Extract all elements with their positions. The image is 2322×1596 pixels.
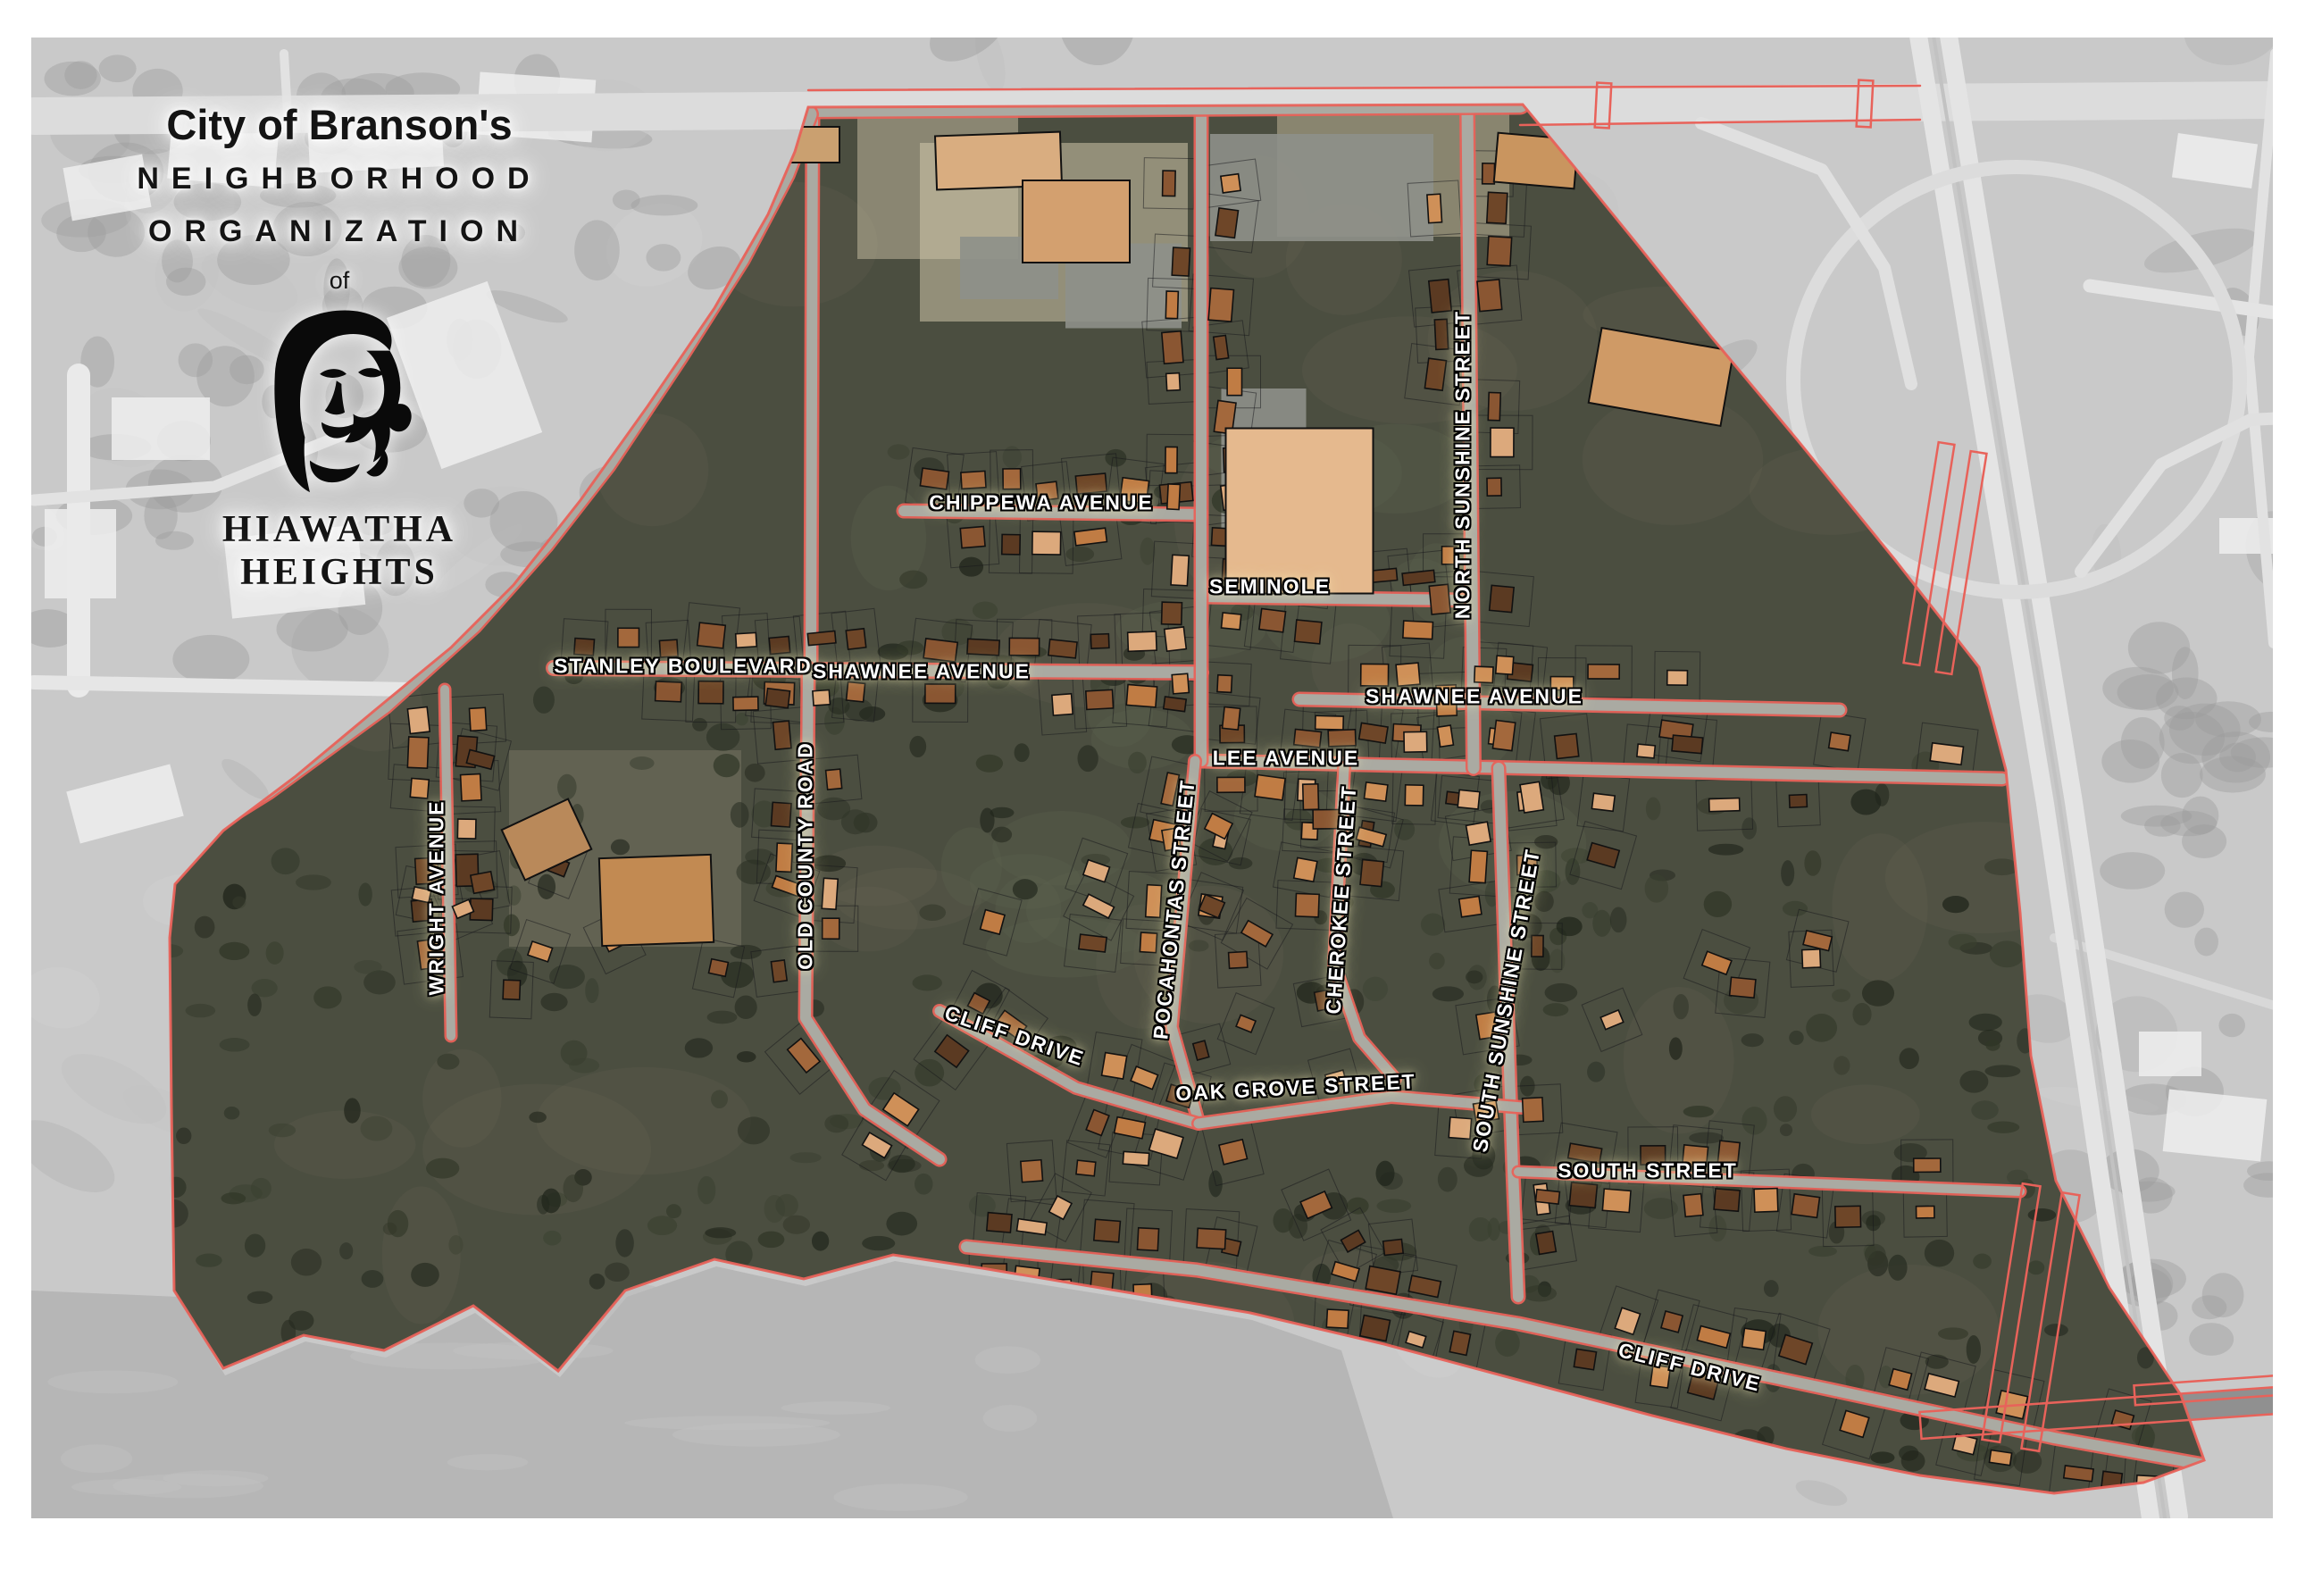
map-page: CHIPPEWA AVENUE SEMINOLE NORTH SUNSHINE … (0, 0, 2322, 1596)
map-title-line3: ORGANIZATION (129, 214, 549, 249)
street-label-chippewa-avenue: CHIPPEWA AVENUE (929, 491, 1154, 515)
street-label-shawnee-avenue-west: SHAWNEE AVENUE (813, 660, 1031, 684)
title-block: City of Branson's NEIGHBORHOOD ORGANIZAT… (129, 100, 549, 594)
organization-name: HIAWATHA HEIGHTS (129, 508, 549, 594)
map-title-connector: of (129, 267, 549, 295)
street-label-lee-avenue: LEE AVENUE (1213, 747, 1359, 771)
street-label-stanley-boulevard: STANLEY BOULEVARD (554, 655, 813, 679)
street-label-north-sunshine-street: NORTH SUNSHINE STREET (1451, 310, 1475, 619)
street-label-old-county-road: OLD COUNTY ROAD (794, 741, 818, 970)
map-title-line1: City of Branson's (129, 100, 549, 149)
street-label-south-street: SOUTH STREET (1558, 1159, 1738, 1183)
street-label-wright-avenue: WRIGHT AVENUE (425, 800, 449, 996)
street-label-seminole: SEMINOLE (1209, 575, 1331, 599)
street-label-shawnee-avenue-east: SHAWNEE AVENUE (1366, 685, 1583, 709)
map-title-line2: NEIGHBORHOOD (129, 162, 549, 196)
hiawatha-head-logo-icon (248, 297, 431, 506)
